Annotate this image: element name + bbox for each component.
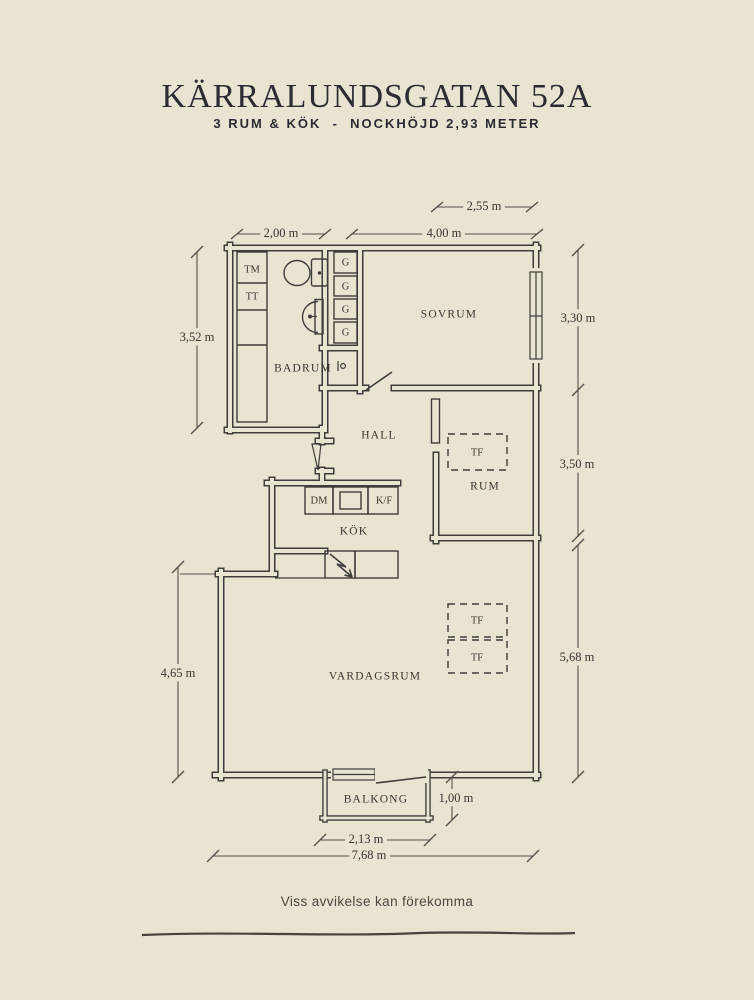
sovrum-window (528, 268, 544, 363)
dim-label-balkong-width: 2,13 m (349, 832, 384, 846)
room-label-sovrum: SOVRUM (421, 309, 477, 321)
room-label-vardagsrum: VARDAGSRUM (329, 671, 421, 683)
fixture-label-g2: G (342, 281, 350, 292)
room-label-kok: KÖK (340, 524, 369, 538)
dim-label-total-width: 7,68 m (352, 848, 387, 862)
dim-label-sovrum-height: 3,30 m (561, 311, 596, 325)
fixture-label-kf: K/F (376, 495, 393, 506)
dim-label-vardagsrum-left-height: 4,65 m (161, 666, 196, 680)
room-label-rum: RUM (470, 481, 500, 493)
sovrum-door (366, 372, 392, 390)
rum-door (432, 399, 440, 443)
fixture-label-tf-rum: TF (471, 447, 483, 458)
walls (215, 245, 538, 778)
fixture-label-tm: TM (244, 264, 260, 275)
vardagsrum-window (331, 767, 377, 784)
dim-label-badrum-height: 3,52 m (180, 330, 215, 344)
room-label-balkong: BALKONG (344, 794, 409, 806)
faucet-icon (338, 361, 345, 371)
fixture-label-tt: TT (246, 291, 259, 302)
fixture-label-g4: G (342, 327, 350, 338)
laundry-cabinet (237, 252, 267, 422)
dim-label-rum-height: 3,50 m (560, 457, 595, 471)
dim-label-top-window: 2,55 m (467, 199, 502, 213)
kitchen-counter (275, 551, 398, 578)
disclaimer-text: Viss avvikelse kan förekomma (0, 894, 754, 909)
fixture-label-tf-vardagsrum-2: TF (471, 652, 483, 663)
fixture-label-dm: DM (311, 495, 329, 506)
floorplan-page: KÄRRALUNDSGATAN 52A 3 RUM & KÖK - NOCKHÖ… (0, 0, 754, 1000)
room-label-badrum: BADRUM (274, 363, 332, 375)
opening-zigzag-icon (330, 554, 352, 577)
scan-artifact-line (142, 932, 575, 935)
room-labels: SOVRUM BADRUM HALL KÖK RUM VARDAGSRUM BA… (274, 309, 500, 806)
room-label-hall: HALL (361, 430, 396, 442)
tf-boxes (448, 434, 507, 673)
dimension-lines (172, 202, 584, 862)
dim-label-sovrum-width: 4,00 m (427, 226, 462, 240)
entrance-door (312, 444, 321, 470)
fixture-label-tf-vardagsrum-1: TF (471, 615, 483, 626)
balcony-door (375, 767, 428, 783)
dim-label-badrum-width: 2,00 m (264, 226, 299, 240)
sink-icon (303, 300, 324, 335)
fixture-label-g1: G (342, 257, 350, 268)
fixture-label-g3: G (342, 304, 350, 315)
dim-label-vardagsrum-height: 5,68 m (560, 650, 595, 664)
floorplan-drawing: 2,55 m 2,00 m 4,00 m 3,52 m 3,30 m 3,50 … (0, 0, 754, 1000)
toilet-icon (284, 259, 328, 286)
dim-label-balkong-depth: 1,00 m (439, 791, 474, 805)
